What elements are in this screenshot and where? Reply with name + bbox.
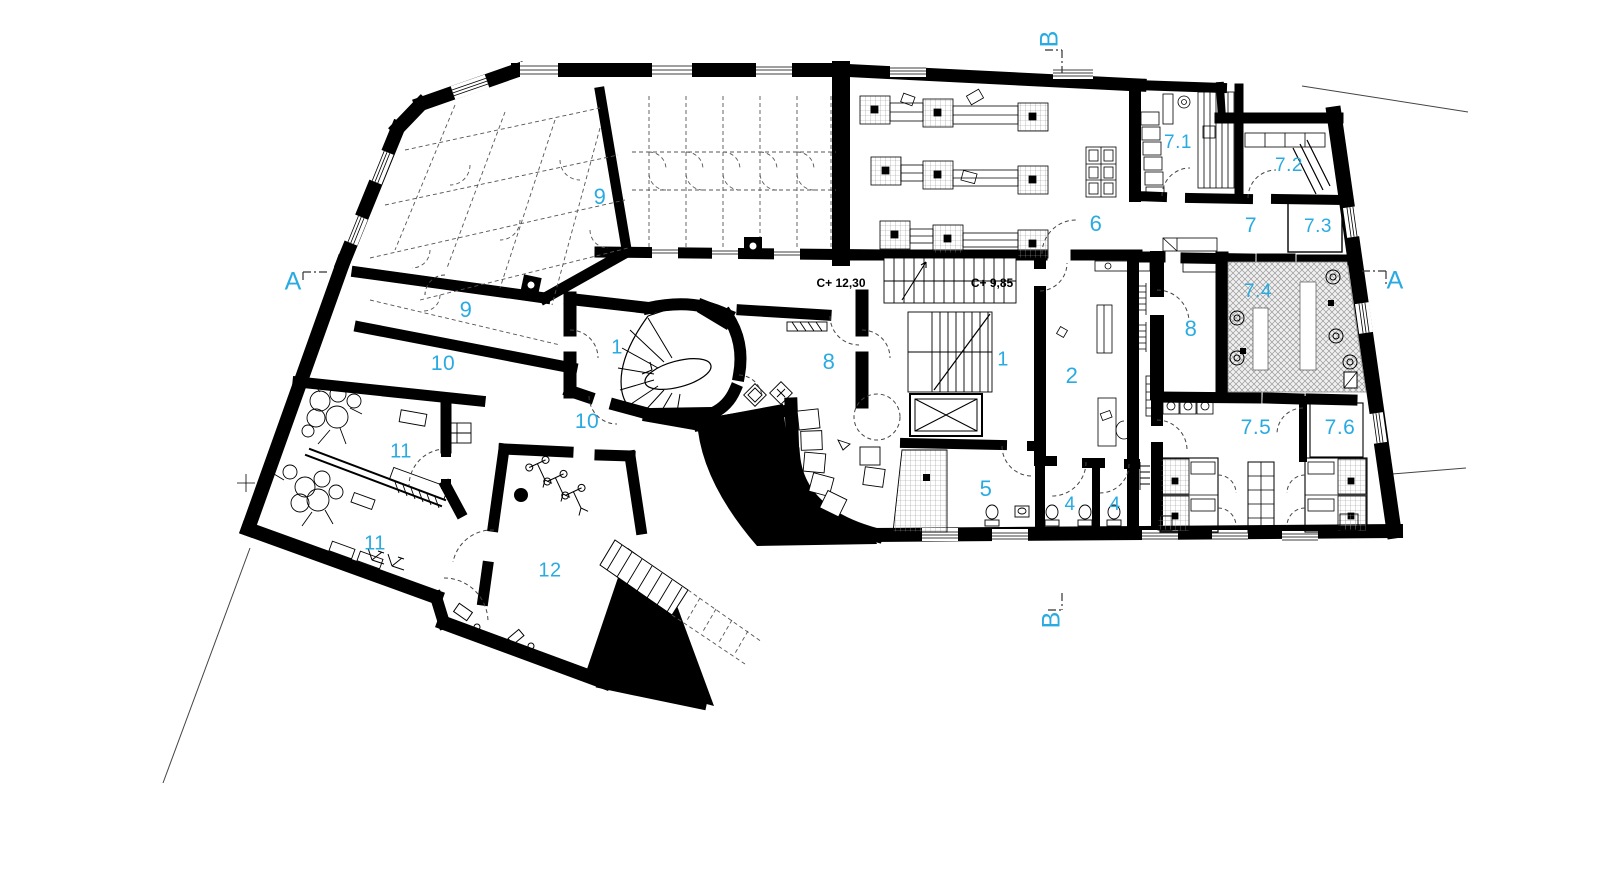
room-label-12: 12 xyxy=(538,560,561,583)
room-label-11-upper: 11 xyxy=(390,441,412,464)
room-label-2: 2 xyxy=(1066,363,1079,389)
room-label-7-5: 7.5 xyxy=(1241,416,1272,440)
room-label-7-2: 7.2 xyxy=(1275,155,1303,177)
wc-3 xyxy=(1078,505,1092,526)
room-label-7-6: 7.6 xyxy=(1325,416,1356,440)
room-label-11-lower: 11 xyxy=(364,533,386,556)
room-label-10-lower: 10 xyxy=(575,410,599,434)
elevator-shaft xyxy=(910,394,982,436)
room-label-4-right: 4 xyxy=(1109,494,1120,516)
room-label-8-right: 8 xyxy=(1185,316,1198,342)
room-label-6: 6 xyxy=(1090,211,1103,237)
locker-column xyxy=(1248,462,1274,532)
workshop-benches xyxy=(860,89,1164,258)
room-label-7: 7 xyxy=(1245,214,1257,238)
level-annotation-lower: C+ 9,85 xyxy=(971,276,1013,290)
section-marker-a-right: A xyxy=(1387,267,1404,296)
wc-2 xyxy=(1045,505,1059,526)
room-label-10-upper: 10 xyxy=(431,352,455,376)
wall-shelves xyxy=(1141,112,1164,200)
room-label-9-lower: 9 xyxy=(460,297,473,323)
stairwell-right xyxy=(908,312,992,392)
wc-1 xyxy=(985,505,999,526)
sink xyxy=(1015,506,1029,517)
room-label-7-4: 7.4 xyxy=(1244,281,1272,303)
room-label-1-left: 1 xyxy=(611,337,623,360)
section-marker-a-left: A xyxy=(285,268,302,297)
room-label-7-1: 7.1 xyxy=(1164,132,1192,154)
floorplan-drawing xyxy=(0,0,1600,886)
level-annotation-upper: C+ 12,30 xyxy=(816,276,865,290)
room-label-4-left: 4 xyxy=(1064,494,1075,516)
room-label-9-upper: 9 xyxy=(594,184,607,210)
room-label-7-3: 7.3 xyxy=(1304,216,1332,238)
floor-plan: 9 9 10 10 11 11 12 1 8 1 2 5 4 4 6 7.1 7… xyxy=(0,0,1600,886)
room-label-8-left: 8 xyxy=(823,349,836,375)
oval-stair xyxy=(618,308,714,418)
locker-unit xyxy=(1086,147,1116,197)
drum-kit-lower xyxy=(274,465,343,526)
cymbal-stands xyxy=(525,455,595,518)
section-marker-b-top: B xyxy=(1036,31,1065,48)
section-marker-b-bottom: B xyxy=(1038,612,1067,629)
room-label-1-right: 1 xyxy=(997,349,1009,372)
room-label-5: 5 xyxy=(980,476,993,502)
